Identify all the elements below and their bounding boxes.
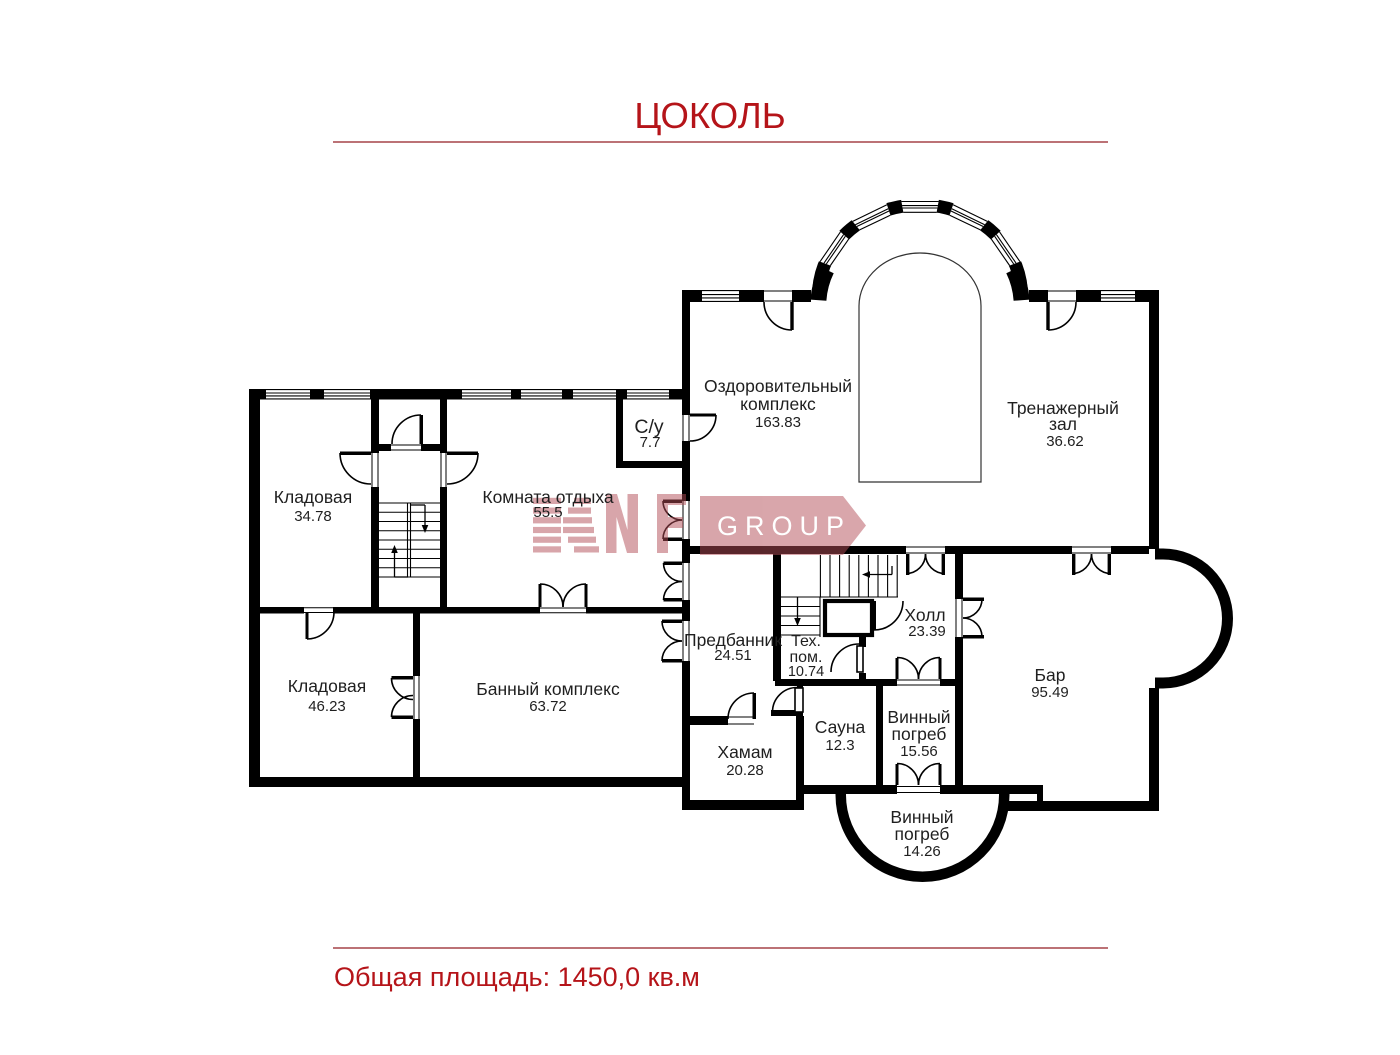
svg-text:34.78: 34.78: [294, 508, 332, 525]
svg-text:15.56: 15.56: [900, 743, 938, 760]
svg-text:зал: зал: [1049, 414, 1077, 434]
svg-text:Кладовая: Кладовая: [288, 676, 366, 696]
svg-text:55.5: 55.5: [533, 504, 562, 521]
svg-text:7.7: 7.7: [640, 434, 661, 451]
svg-text:Бар: Бар: [1035, 665, 1066, 685]
svg-text:погреб: погреб: [892, 724, 947, 744]
svg-text:GROUP: GROUP: [717, 511, 851, 541]
svg-text:36.62: 36.62: [1046, 433, 1084, 450]
svg-text:23.39: 23.39: [908, 623, 946, 640]
svg-text:ЦОКОЛЬ: ЦОКОЛЬ: [634, 95, 785, 136]
svg-text:10.74: 10.74: [788, 664, 824, 680]
svg-text:20.28: 20.28: [726, 762, 764, 779]
svg-text:Оздоровительный: Оздоровительный: [704, 376, 852, 396]
svg-text:Тех.: Тех.: [791, 633, 821, 650]
svg-text:95.49: 95.49: [1031, 684, 1069, 701]
svg-text:погреб: погреб: [895, 824, 950, 844]
svg-text:46.23: 46.23: [308, 698, 346, 715]
svg-text:Сауна: Сауна: [815, 717, 866, 737]
svg-text:Общая площадь: 1450,0 кв.м: Общая площадь: 1450,0 кв.м: [334, 962, 700, 992]
svg-text:Холл: Холл: [904, 605, 945, 625]
svg-text:комплекс: комплекс: [740, 394, 816, 414]
svg-text:63.72: 63.72: [529, 698, 567, 715]
svg-text:Банный комплекс: Банный комплекс: [476, 679, 620, 699]
svg-text:Хамам: Хамам: [717, 742, 772, 762]
svg-text:24.51: 24.51: [714, 647, 752, 664]
svg-text:Кладовая: Кладовая: [274, 487, 352, 507]
svg-text:163.83: 163.83: [755, 414, 801, 431]
svg-text:12.3: 12.3: [825, 737, 854, 754]
svg-text:14.26: 14.26: [903, 843, 941, 860]
